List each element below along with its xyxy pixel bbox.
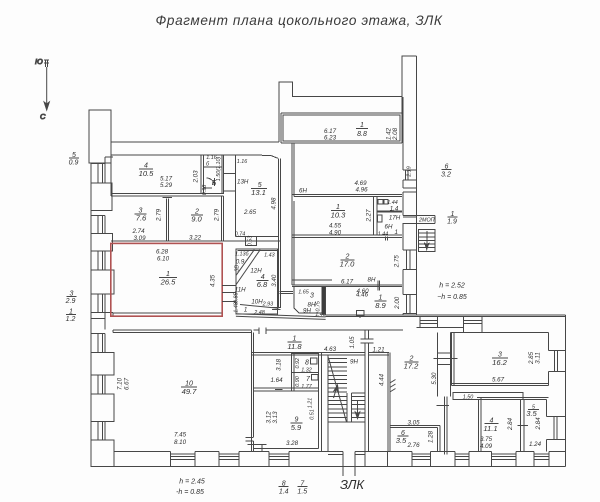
svg-text:1: 1 [360,122,364,129]
svg-text:2.76: 2.76 [406,442,420,449]
svg-text:8.8: 8.8 [357,131,367,138]
svg-text:1.77: 1.77 [301,384,312,390]
svg-text:10Н: 10Н [251,298,263,305]
svg-text:h = 2.52: h = 2.52 [439,283,465,290]
svg-text:10.3: 10.3 [331,210,347,219]
svg-text:0.85: 0.85 [234,291,240,302]
svg-text:16.2: 16.2 [492,358,508,367]
svg-text:9.0: 9.0 [191,215,202,224]
svg-text:0.9: 0.9 [236,259,245,266]
svg-text:1.50: 1.50 [463,394,474,400]
svg-text:3: 3 [310,293,314,300]
svg-text:3.28: 3.28 [286,440,299,447]
svg-text:5.9: 5.9 [291,423,302,432]
svg-text:4.44: 4.44 [379,373,386,386]
svg-text:1.64: 1.64 [270,377,283,384]
svg-text:0.90: 0.90 [295,376,301,387]
svg-text:1.4: 1.4 [390,205,399,212]
svg-text:7.10: 7.10 [117,377,124,390]
svg-text:1.2: 1.2 [66,316,76,323]
svg-text:1.24: 1.24 [529,441,542,448]
svg-text:1.48: 1.48 [234,302,240,313]
svg-text:8: 8 [305,360,309,367]
svg-text:1.05: 1.05 [349,336,356,349]
svg-text:17.0: 17.0 [340,260,356,269]
svg-text:1.21: 1.21 [308,398,314,409]
svg-text:6.17: 6.17 [341,279,354,286]
svg-text:4.09: 4.09 [480,443,493,450]
svg-text:5.67: 5.67 [492,377,505,384]
svg-text:h = 2.45: h = 2.45 [179,479,205,486]
svg-text:7.6: 7.6 [136,214,147,223]
svg-text:2.79: 2.79 [214,208,221,222]
svg-text:3.22: 3.22 [189,234,202,241]
svg-text:4.96: 4.96 [355,187,368,194]
svg-text:3В: 3В [235,265,241,272]
svg-text:8Н: 8Н [368,277,376,284]
svg-text:2.00: 2.00 [394,296,401,310]
svg-text:1.5: 1.5 [297,488,307,495]
svg-text:5.29: 5.29 [160,182,173,189]
svg-text:2.93: 2.93 [262,301,274,307]
svg-text:3.11: 3.11 [535,352,542,364]
svg-text:1: 1 [394,229,397,236]
svg-text:1.65: 1.65 [298,289,309,295]
svg-text:8.9: 8.9 [375,301,386,310]
svg-text:1.13б: 1.13б [235,252,249,258]
svg-text:6.67: 6.67 [124,377,131,390]
svg-text:6.10: 6.10 [157,255,170,262]
svg-text:0.75: 0.75 [316,300,322,311]
svg-text:С: С [40,112,46,121]
svg-text:8.10: 8.10 [174,439,187,446]
svg-text:2.03: 2.03 [193,170,200,184]
svg-text:1.50(1.10): 1.50(1.10) [216,157,222,182]
svg-text:−h = 0.85: −h = 0.85 [437,294,467,301]
svg-text:2.08: 2.08 [392,127,399,141]
svg-text:2.9: 2.9 [65,298,76,305]
svg-text:3.13: 3.13 [272,411,279,424]
svg-text:17.2: 17.2 [404,362,420,371]
svg-text:4.90: 4.90 [329,229,342,236]
svg-text:0.9: 0.9 [69,160,79,167]
svg-text:26.5: 26.5 [160,278,177,287]
svg-text:10.5: 10.5 [139,169,155,178]
svg-text:1.4: 1.4 [279,488,289,495]
svg-text:0.98: 0.98 [202,185,208,196]
svg-text:11.8: 11.8 [287,342,302,351]
svg-text:2.75: 2.75 [394,255,401,269]
svg-text:0.51: 0.51 [310,409,316,420]
svg-text:13Н: 13Н [237,179,249,186]
svg-text:Ю: Ю [35,57,43,66]
svg-text:0.92: 0.92 [295,358,301,369]
svg-text:1.16: 1.16 [237,159,248,165]
svg-text:0.74: 0.74 [235,232,246,238]
svg-text:3.5: 3.5 [526,409,537,418]
svg-text:9Н: 9Н [350,359,358,366]
svg-text:2.27: 2.27 [365,209,372,223]
svg-text:4.46: 4.46 [356,292,369,299]
svg-text:13.1: 13.1 [251,188,266,197]
svg-text:6Н: 6Н [299,188,307,195]
svg-text:4.35: 4.35 [210,274,217,287]
svg-text:4.63: 4.63 [324,346,337,353]
svg-text:ЗЛК: ЗЛК [340,477,365,492]
svg-text:11.1: 11.1 [483,424,497,433]
svg-text:2.19: 2.19 [407,166,413,178]
svg-text:6Н: 6Н [385,223,393,230]
svg-text:2МОП: 2МОП [418,218,435,224]
svg-text:Фрагмент плана цокольного эта: Фрагмент плана цокольного этажа, ЗЛК [156,13,443,28]
svg-text:7.45: 7.45 [174,432,187,439]
svg-text:1.44: 1.44 [378,231,389,237]
svg-text:49.7: 49.7 [182,387,198,396]
svg-text:2.79: 2.79 [156,208,163,222]
svg-text:9Н: 9Н [303,307,311,314]
svg-text:2.65: 2.65 [243,209,257,216]
svg-text:5.30: 5.30 [431,372,438,385]
svg-text:3.5: 3.5 [396,436,407,445]
svg-text:1.32: 1.32 [301,367,312,373]
svg-text:6.8: 6.8 [257,280,268,289]
svg-text:4.98: 4.98 [271,197,278,210]
svg-text:1.28: 1.28 [427,430,434,443]
svg-text:2.84: 2.84 [535,417,542,431]
svg-text:3.18: 3.18 [276,358,283,371]
svg-text:1.9: 1.9 [447,219,457,226]
svg-text:2.84: 2.84 [507,417,514,431]
svg-text:17Н: 17Н [389,214,401,221]
svg-text:1: 1 [244,307,247,314]
svg-text:6.23: 6.23 [324,135,337,142]
svg-text:3.2: 3.2 [441,172,451,179]
svg-text:1.43: 1.43 [264,252,275,258]
svg-text:-h = 0.85: -h = 0.85 [176,489,204,496]
svg-text:3.40: 3.40 [271,274,278,287]
svg-text:Б: Б [212,180,217,187]
